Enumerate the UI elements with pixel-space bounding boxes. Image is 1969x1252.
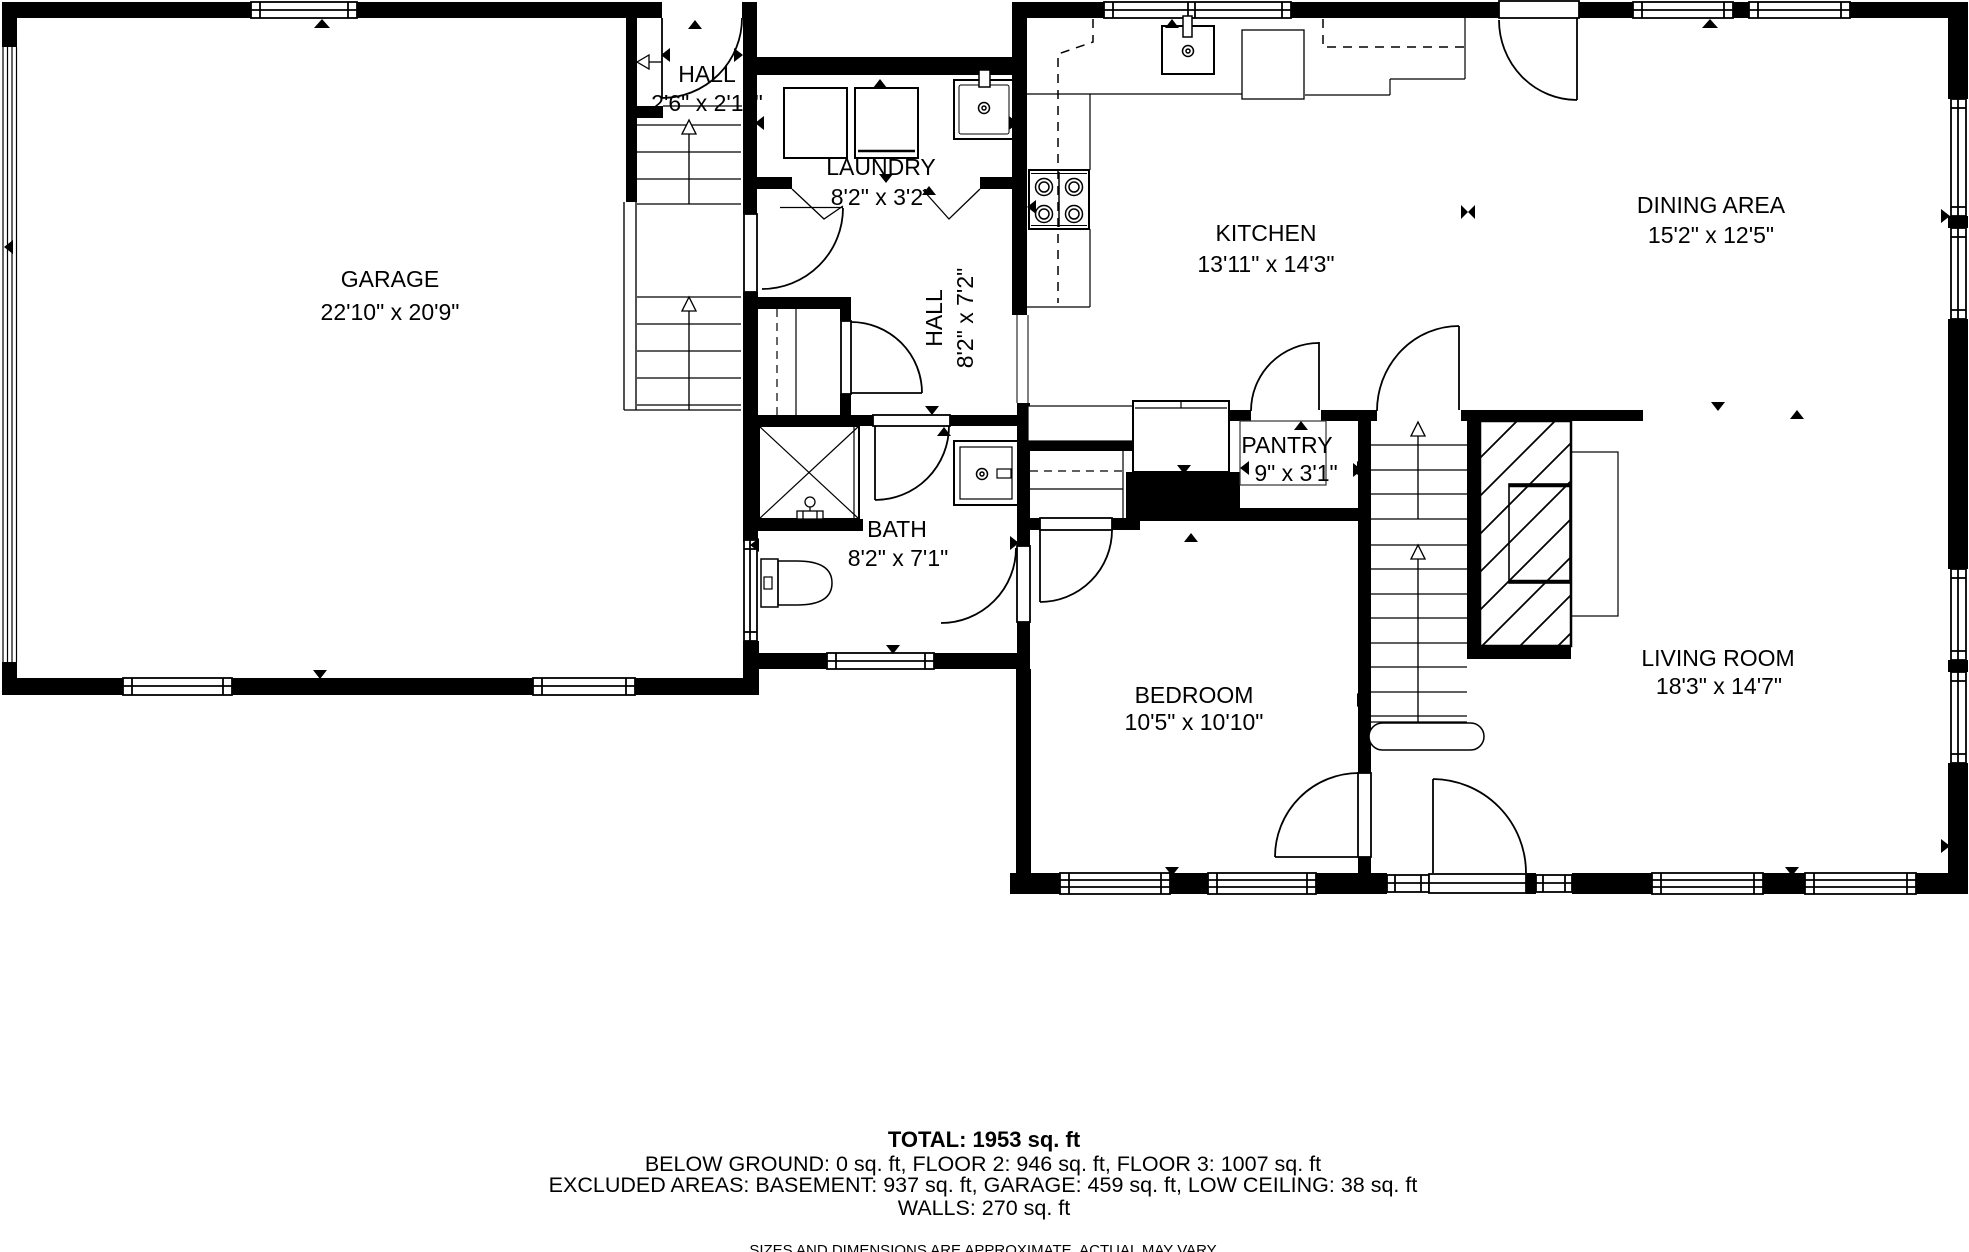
svg-text:HALL: HALL [921,289,947,347]
svg-text:EXCLUDED AREAS: BASEMENT: 937: EXCLUDED AREAS: BASEMENT: 937 sq. ft, GA… [549,1173,1418,1197]
svg-text:2'6" x 2'11": 2'6" x 2'11" [651,90,763,116]
svg-text:DINING AREA: DINING AREA [1637,192,1786,218]
svg-text:22'10" x 20'9": 22'10" x 20'9" [321,299,460,325]
svg-text:8'2" x 3'2": 8'2" x 3'2" [831,184,932,210]
svg-text:LAUNDRY: LAUNDRY [826,154,936,180]
svg-text:LIVING ROOM: LIVING ROOM [1641,645,1794,671]
svg-text:SIZES AND DIMENSIONS ARE APPRO: SIZES AND DIMENSIONS ARE APPROXIMATE, AC… [749,1242,1216,1252]
svg-text:HALL: HALL [678,61,736,87]
svg-text:8'2" x 7'1": 8'2" x 7'1" [848,545,949,571]
svg-text:GARAGE: GARAGE [341,266,439,292]
svg-text:TOTAL: 1953 sq. ft: TOTAL: 1953 sq. ft [888,1127,1081,1152]
svg-text:BATH: BATH [867,516,927,542]
svg-text:13'11" x 14'3": 13'11" x 14'3" [1197,251,1334,277]
svg-text:BEDROOM: BEDROOM [1135,682,1254,708]
svg-text:15'2" x 12'5": 15'2" x 12'5" [1648,222,1774,248]
svg-text:9" x 3'1": 9" x 3'1" [1254,460,1337,486]
svg-text:8'2" x 7'2": 8'2" x 7'2" [952,268,978,369]
svg-text:PANTRY: PANTRY [1241,432,1332,458]
svg-text:KITCHEN: KITCHEN [1216,220,1317,246]
svg-text:10'5" x 10'10": 10'5" x 10'10" [1125,709,1264,735]
svg-text:18'3" x 14'7": 18'3" x 14'7" [1656,673,1782,699]
svg-text:WALLS: 270 sq. ft: WALLS: 270 sq. ft [898,1196,1071,1220]
